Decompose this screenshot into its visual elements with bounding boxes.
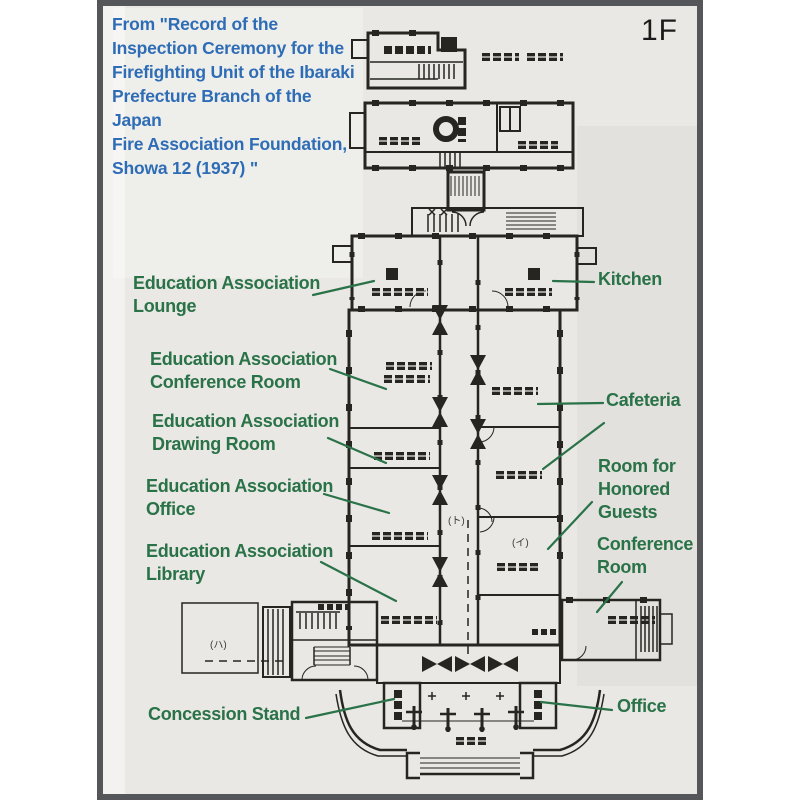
label-line: Conference Room (150, 371, 337, 394)
label-line: Room (597, 556, 693, 579)
screenshot-root: { "caption": { "lines": [ "From \"Record… (0, 0, 800, 800)
chimney-circle (436, 119, 456, 139)
label-line: Guests (598, 501, 676, 524)
label-education-association-library: Education Association Library (146, 540, 333, 586)
label-line: Kitchen (598, 268, 662, 291)
stair-tower (448, 172, 484, 226)
caption-line: Inspection Ceremony for the (112, 36, 362, 60)
plan-mark-to: (ト) (448, 516, 465, 527)
annotation-leader-lines (306, 281, 622, 718)
label-line: Concession Stand (148, 703, 300, 726)
label-line: Lounge (133, 295, 320, 318)
floor-indicator: 1F (641, 14, 678, 48)
caption-line: From "Record of the (112, 12, 362, 36)
label-line: Education Association (150, 348, 337, 371)
entrance-columns (402, 706, 534, 732)
label-line: Office (617, 695, 666, 718)
plan-mark-i: (イ) (512, 538, 529, 549)
label-cafeteria: Cafeteria (606, 389, 680, 412)
caption-line: Prefecture Branch of the Japan (112, 84, 362, 132)
label-line: Library (146, 563, 333, 586)
label-education-association-drawing-room: Education Association Drawing Room (152, 410, 339, 456)
lower-right-wing (562, 600, 672, 660)
small-building-bathhouse (350, 103, 573, 168)
label-line: Room for (598, 455, 676, 478)
label-education-association-office: Education Association Office (146, 475, 333, 521)
label-line: Education Association (146, 475, 333, 498)
label-room-for-honored-guests: Room for Honored Guests (598, 455, 676, 524)
label-conference-room: Conference Room (597, 533, 693, 579)
caption-line: Firefighting Unit of the Ibaraki (112, 60, 362, 84)
label-line: Education Association (152, 410, 339, 433)
label-line: Office (146, 498, 333, 521)
small-building-top (352, 33, 465, 88)
entrance-block (336, 645, 604, 778)
caption-line: Showa 12 (1937) " (112, 156, 362, 180)
label-education-association-lounge: Education Association Lounge (133, 272, 320, 318)
label-line: Education Association (133, 272, 320, 295)
label-line: Drawing Room (152, 433, 339, 456)
label-kitchen: Kitchen (598, 268, 662, 291)
label-line: Conference (597, 533, 693, 556)
label-line: Cafeteria (606, 389, 680, 412)
label-line: Honored (598, 478, 676, 501)
label-education-association-conference-room: Education Association Conference Room (150, 348, 337, 394)
label-office: Office (617, 695, 666, 718)
caption-line: Fire Association Foundation, (112, 132, 362, 156)
plan-mark-ha: (ハ) (210, 640, 227, 651)
source-caption: From "Record of the Inspection Ceremony … (112, 12, 362, 180)
label-concession-stand: Concession Stand (148, 703, 300, 726)
label-line: Education Association (146, 540, 333, 563)
